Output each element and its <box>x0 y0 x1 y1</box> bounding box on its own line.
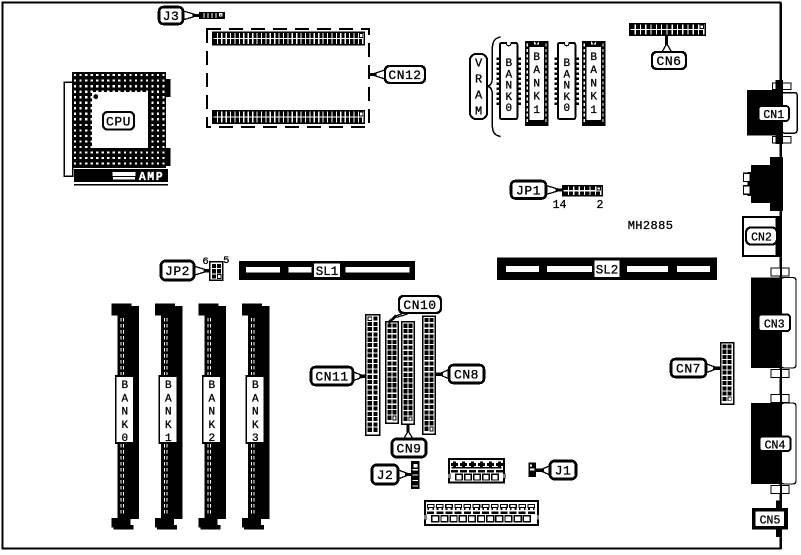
svg-text:JP2: JP2 <box>165 264 190 279</box>
svg-text:A: A <box>165 393 172 405</box>
svg-text:B: B <box>121 380 128 392</box>
svg-text:B: B <box>533 52 540 64</box>
svg-text:B: B <box>563 58 570 70</box>
svg-text:N: N <box>533 78 540 90</box>
svg-text:B: B <box>208 380 215 392</box>
svg-text:R: R <box>475 73 482 87</box>
svg-text:K: K <box>121 420 128 432</box>
svg-text:K: K <box>208 420 215 432</box>
svg-text:3: 3 <box>252 433 259 445</box>
svg-text:2: 2 <box>597 199 604 212</box>
svg-text:N: N <box>121 407 128 419</box>
svg-text:1: 1 <box>533 105 540 117</box>
svg-text:0: 0 <box>563 103 570 115</box>
svg-text:A: A <box>533 65 540 77</box>
svg-text:1: 1 <box>165 433 172 445</box>
svg-text:A: A <box>121 393 128 405</box>
svg-text:CN11: CN11 <box>315 370 348 385</box>
svg-text:CN3: CN3 <box>764 318 785 331</box>
svg-text:J1: J1 <box>555 464 572 479</box>
svg-text:CN9: CN9 <box>397 442 422 457</box>
svg-text:1: 1 <box>590 105 597 117</box>
svg-text:2: 2 <box>208 433 215 445</box>
svg-text:A: A <box>563 69 570 81</box>
svg-text:N: N <box>505 81 512 93</box>
svg-text:6: 6 <box>202 256 208 268</box>
svg-text:JP1: JP1 <box>516 183 541 198</box>
svg-text:0: 0 <box>121 433 128 445</box>
svg-text:K: K <box>563 92 570 104</box>
svg-text:J3: J3 <box>163 9 180 24</box>
svg-text:CN2: CN2 <box>751 232 772 245</box>
svg-text:A: A <box>590 65 597 77</box>
svg-text:SL1: SL1 <box>316 265 339 279</box>
svg-text:CN6: CN6 <box>657 54 682 69</box>
svg-text:CPU: CPU <box>106 114 131 129</box>
svg-text:CN1: CN1 <box>763 109 784 122</box>
svg-text:N: N <box>252 407 259 419</box>
svg-text:K: K <box>533 92 540 104</box>
svg-text:B: B <box>165 380 172 392</box>
svg-text:CN5: CN5 <box>760 514 781 527</box>
svg-text:B: B <box>252 380 259 392</box>
svg-text:M: M <box>475 105 482 119</box>
svg-text:N: N <box>208 407 215 419</box>
svg-text:N: N <box>563 81 570 93</box>
svg-text:A: A <box>208 393 215 405</box>
svg-text:CN8: CN8 <box>454 368 479 383</box>
svg-text:CN7: CN7 <box>676 362 701 377</box>
svg-text:J2: J2 <box>377 468 394 483</box>
svg-text:5: 5 <box>223 255 229 267</box>
svg-text:CN12: CN12 <box>388 68 421 83</box>
svg-text:K: K <box>505 92 512 104</box>
svg-text:AMP: AMP <box>139 171 164 184</box>
svg-text:14: 14 <box>553 199 567 212</box>
svg-text:CN4: CN4 <box>765 439 786 452</box>
svg-text:N: N <box>590 78 597 90</box>
svg-text:N: N <box>165 407 172 419</box>
svg-text:MH2885: MH2885 <box>628 219 674 233</box>
svg-text:A: A <box>505 69 512 81</box>
svg-text:SL2: SL2 <box>596 263 619 277</box>
svg-text:K: K <box>252 420 259 432</box>
svg-text:B: B <box>590 52 597 64</box>
svg-text:K: K <box>165 420 172 432</box>
svg-text:CN10: CN10 <box>403 298 436 313</box>
svg-text:K: K <box>590 92 597 104</box>
svg-text:A: A <box>252 393 259 405</box>
svg-text:V: V <box>475 57 483 71</box>
svg-text:B: B <box>505 58 512 70</box>
svg-text:A: A <box>475 89 483 103</box>
svg-text:0: 0 <box>505 103 512 115</box>
